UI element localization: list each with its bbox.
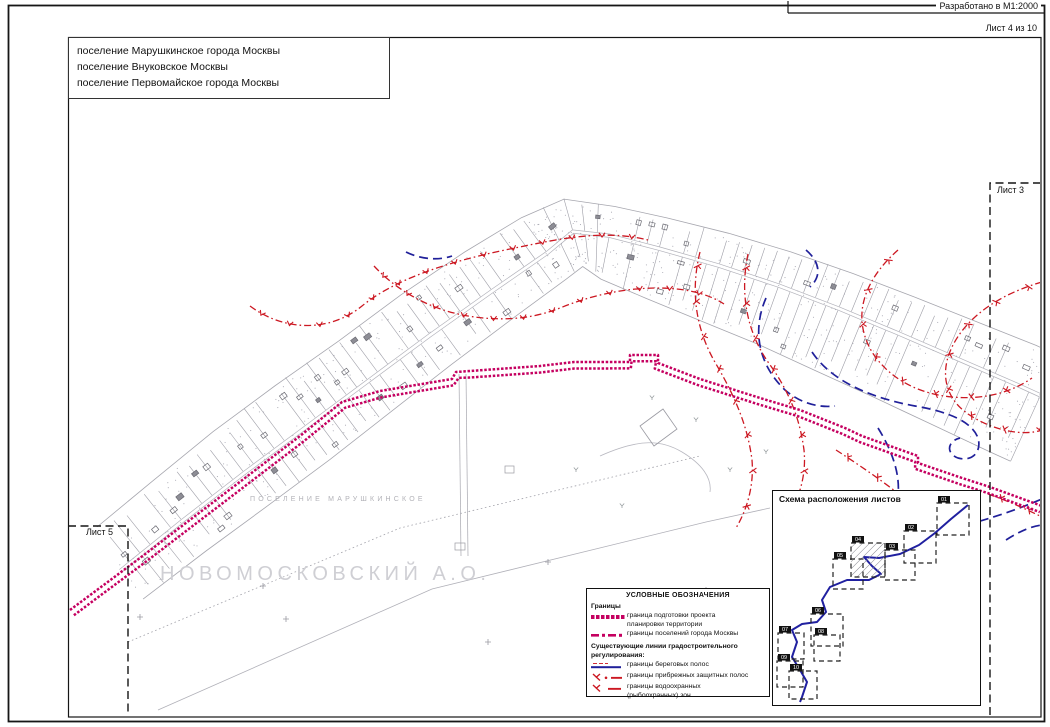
inset-sheet-number: 08 — [818, 629, 824, 635]
inset-sheet-number: 01 — [941, 497, 947, 503]
inset-title: Схема расположения листов — [779, 494, 904, 504]
legend-item-settlement-boundary: границы поселений города Москвы — [627, 630, 765, 638]
water-protection-marker-icon — [591, 683, 627, 693]
settlement-line-1: поселение Марушкинское города Москвы — [77, 44, 389, 60]
settlements-note-box: поселение Марушкинское города Москвы пос… — [68, 37, 390, 99]
sheet-3-edge-label: Лист 3 — [995, 185, 1026, 195]
district-label: НОВОМОСКОВСКИЙ А.О. — [160, 563, 490, 586]
inset-sheet-number: 06 — [815, 608, 821, 614]
inset-sheet-number: 05 — [837, 553, 843, 559]
settlement-line-2: поселение Внуковское Москвы — [77, 60, 389, 76]
legend-item-project-boundary: граница подготовки проектапланировки тер… — [627, 612, 765, 629]
sheet-number-label: Лист 4 из 10 — [984, 23, 1039, 33]
legend-group-regulation: Существующие линии градостроительногорег… — [591, 643, 765, 660]
legend-item-shore-strip: границы береговых полос — [627, 661, 765, 669]
legend-title: УСЛОВНЫЕ ОБОЗНАЧЕНИЯ — [591, 592, 765, 601]
inset-sheet-number: 09 — [781, 655, 787, 661]
settlement-line-3: поселение Первомайское города Москвы — [77, 76, 389, 92]
inset-sheet-number: 07 — [782, 627, 788, 633]
map-sheet: Разработано в М1:2000 Лист 4 из 10 посел… — [0, 0, 1050, 727]
shore-strip-marker-icon — [591, 661, 627, 671]
developed-scale-label: Разработано в М1:2000 — [936, 1, 1041, 11]
inset-sheet-number: 04 — [855, 537, 861, 543]
protective-strip-marker-icon — [591, 672, 627, 682]
sheet-layout-inset: 01020304050607080910 Схема расположения … — [772, 490, 981, 706]
legend-group-borders: Границы — [591, 603, 765, 611]
settlement-band-label: ПОСЕЛЕНИЕ МАРУШКИНСКОЕ — [250, 496, 426, 503]
settlement-boundary-marker-icon — [591, 630, 627, 640]
legend-box: УСЛОВНЫЕ ОБОЗНАЧЕНИЯ Границы граница под… — [586, 588, 770, 697]
legend-item-protective-strip: границы прибрежных защитных полос — [627, 672, 765, 680]
inset-sheet-square-08 — [814, 635, 840, 661]
sheet-5-edge-label: Лист 5 — [84, 527, 115, 537]
inset-sheet-number: 10 — [793, 665, 799, 671]
project-boundary-marker-icon — [591, 612, 627, 622]
inset-sheet-number: 02 — [908, 525, 914, 531]
sheet-layout-canvas: 01020304050607080910 — [773, 491, 978, 703]
legend-item-water-protection: границы водоохранных(рыбоохранных) зон — [627, 683, 765, 700]
inset-sheet-number: 03 — [889, 544, 895, 550]
